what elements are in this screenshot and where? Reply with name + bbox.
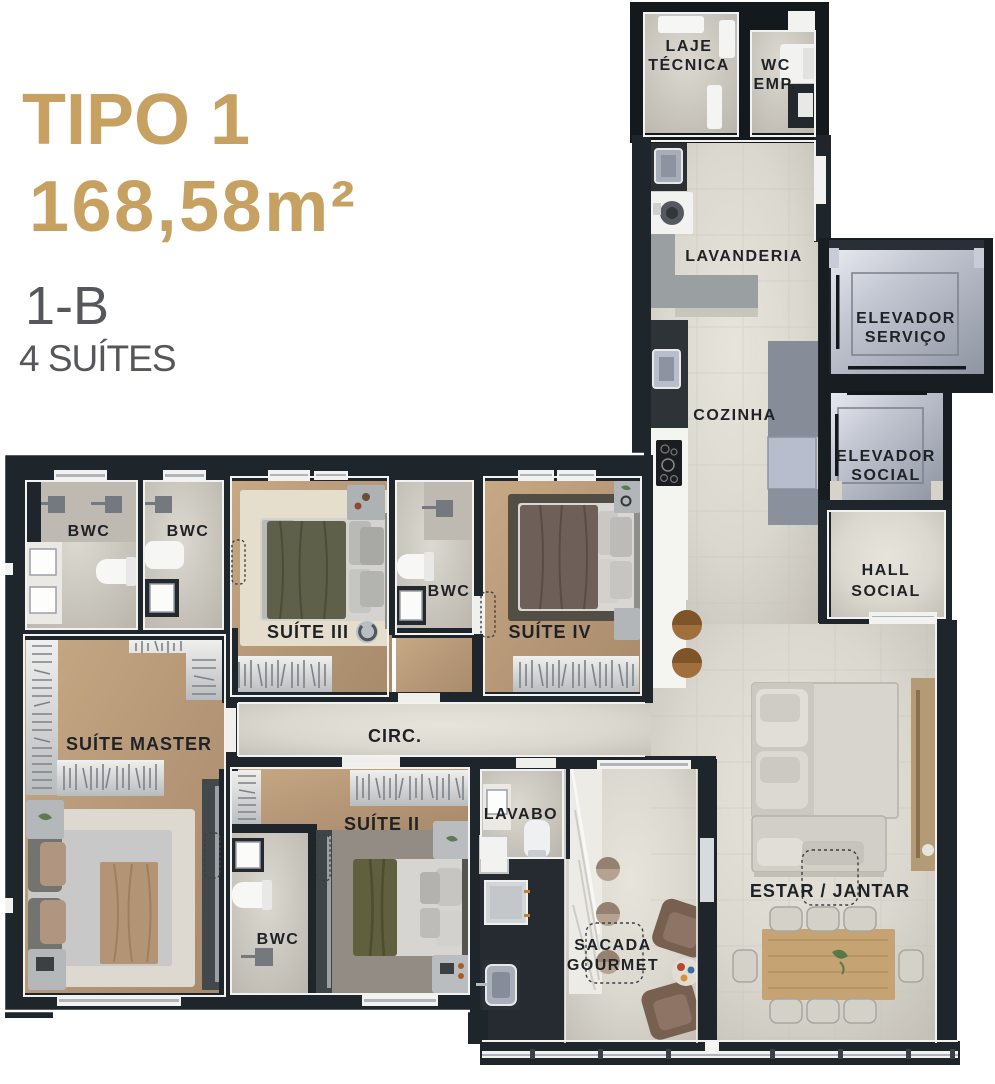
svg-text:HALL: HALL xyxy=(862,562,911,579)
svg-text:SERVIÇO: SERVIÇO xyxy=(865,329,947,346)
svg-text:GOURMET: GOURMET xyxy=(567,957,659,974)
svg-text:BWC: BWC xyxy=(257,931,300,948)
svg-text:TIPO 1: TIPO 1 xyxy=(22,80,250,160)
svg-text:LAVABO: LAVABO xyxy=(484,806,558,823)
svg-text:SACADA: SACADA xyxy=(574,937,651,954)
svg-text:ELEVADOR: ELEVADOR xyxy=(856,310,956,327)
svg-text:168,58m²: 168,58m² xyxy=(29,167,357,247)
svg-text:BWC: BWC xyxy=(167,523,210,540)
svg-text:COZINHA: COZINHA xyxy=(693,407,776,424)
svg-text:ESTAR / JANTAR: ESTAR / JANTAR xyxy=(750,881,910,901)
svg-text:ELEVADOR: ELEVADOR xyxy=(836,448,936,465)
svg-text:4 SUÍTES: 4 SUÍTES xyxy=(19,338,176,379)
svg-text:WC: WC xyxy=(761,57,791,74)
svg-text:BWC: BWC xyxy=(428,583,471,600)
svg-text:1-B: 1-B xyxy=(25,276,109,336)
svg-text:SUÍTE III: SUÍTE III xyxy=(267,621,349,642)
svg-text:CIRC.: CIRC. xyxy=(368,726,422,746)
svg-text:SOCIAL: SOCIAL xyxy=(851,583,920,600)
svg-text:SUÍTE II: SUÍTE II xyxy=(344,813,420,834)
svg-text:SOCIAL: SOCIAL xyxy=(851,467,920,484)
svg-text:LAJE: LAJE xyxy=(666,38,713,55)
svg-text:SUÍTE IV: SUÍTE IV xyxy=(508,621,591,642)
svg-text:LAVANDERIA: LAVANDERIA xyxy=(685,248,803,265)
svg-text:BWC: BWC xyxy=(68,523,111,540)
svg-text:TÉCNICA: TÉCNICA xyxy=(648,55,730,74)
svg-text:SUÍTE MASTER: SUÍTE MASTER xyxy=(66,733,212,754)
svg-text:EMP.: EMP. xyxy=(753,76,796,93)
